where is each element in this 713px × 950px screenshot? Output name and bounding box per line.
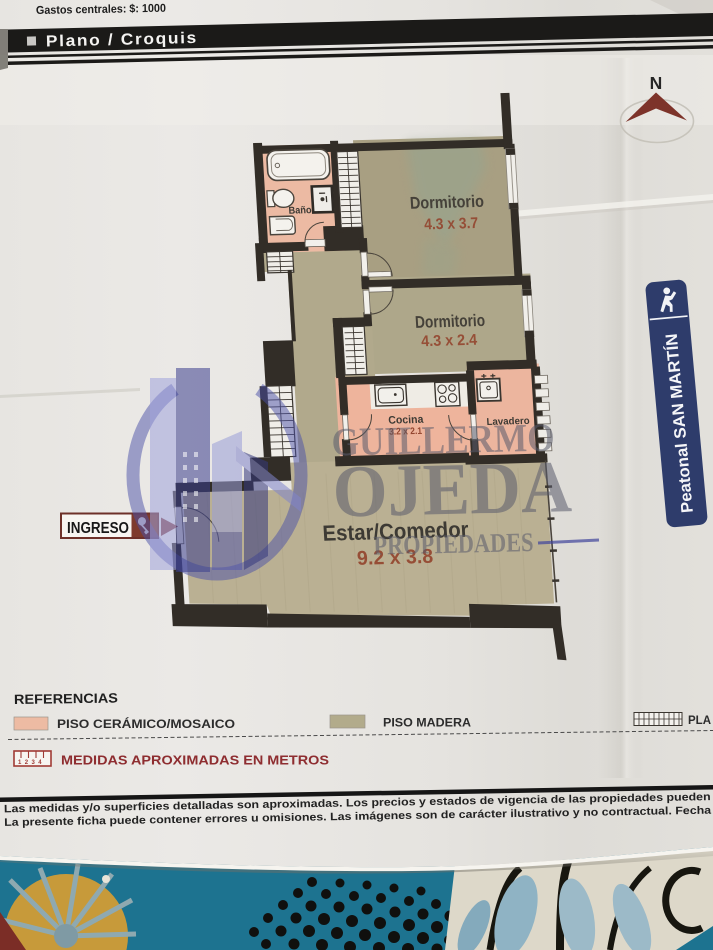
svg-text:4.3 x 3.7: 4.3 x 3.7 <box>424 215 479 233</box>
svg-text:4.3 x 2.4: 4.3 x 2.4 <box>421 332 478 351</box>
svg-text:INGRESO: INGRESO <box>67 520 129 537</box>
svg-text:Gastos centrales: $: 1000: Gastos centrales: $: 1000 <box>36 3 166 17</box>
svg-text:1234: 1234 <box>18 760 45 766</box>
svg-text:MEDIDAS APROXIMADAS EN METROS: MEDIDAS APROXIMADAS EN METROS <box>61 753 329 768</box>
svg-text:Baño: Baño <box>288 205 312 217</box>
svg-text:Dormitorio: Dormitorio <box>409 192 484 213</box>
svg-text:Dormitorio: Dormitorio <box>414 311 485 332</box>
svg-text:OJEDA: OJEDA <box>332 446 573 533</box>
svg-text:Plano / Croquis: Plano / Croquis <box>46 30 198 51</box>
svg-text:PISO MADERA: PISO MADERA <box>383 718 471 730</box>
svg-text:PLA: PLA <box>688 715 711 727</box>
svg-text:PROPIEDADES: PROPIEDADES <box>373 527 534 561</box>
svg-text:PISO CERÁMICO/MOSAICO: PISO CERÁMICO/MOSAICO <box>57 718 235 731</box>
svg-text:REFERENCIAS: REFERENCIAS <box>14 691 118 707</box>
svg-text:N: N <box>650 73 663 93</box>
